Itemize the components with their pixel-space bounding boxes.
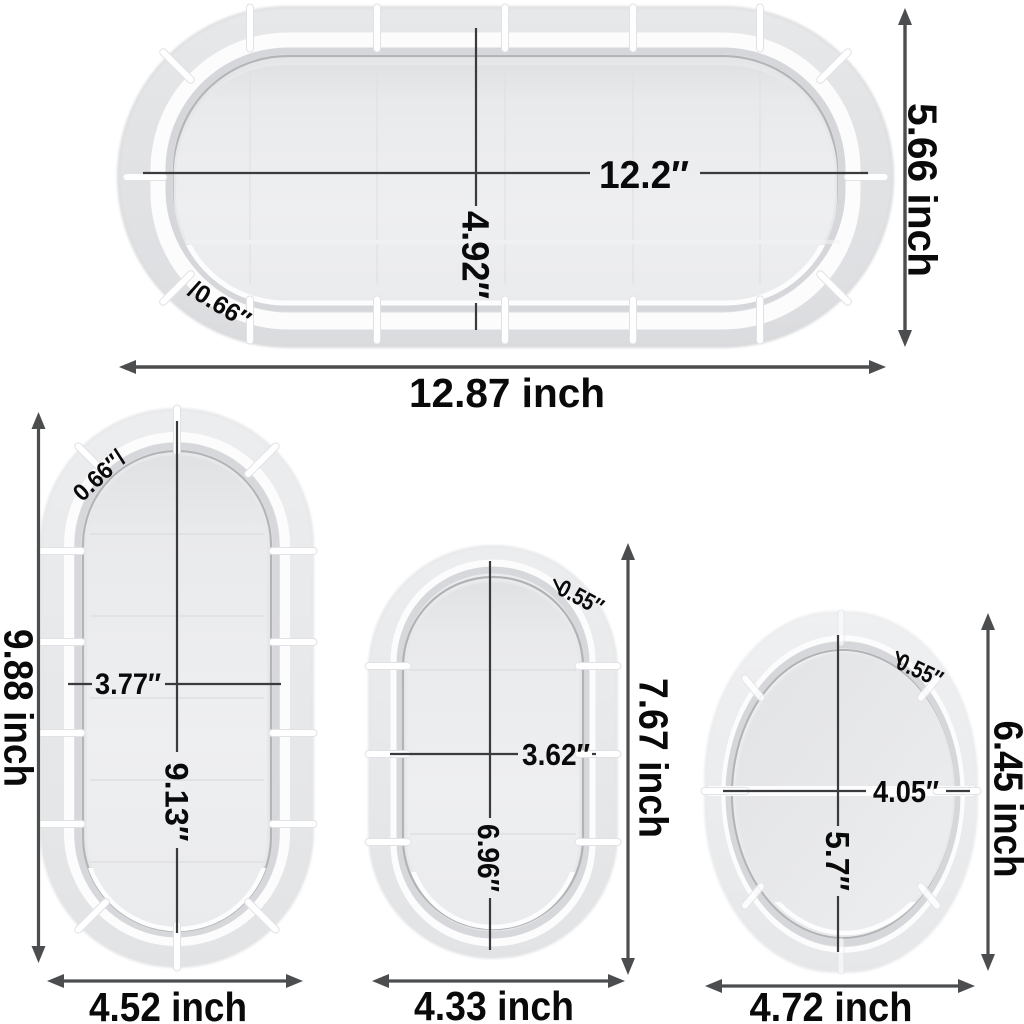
svg-text:4.52 inch: 4.52 inch (89, 984, 247, 1024)
svg-text:12.2″: 12.2″ (599, 154, 689, 197)
svg-text:4.05″: 4.05″ (873, 774, 939, 809)
svg-text:5.66 inch: 5.66 inch (899, 103, 945, 277)
svg-text:9.88 inch: 9.88 inch (0, 629, 41, 787)
svg-text:12.87 inch: 12.87 inch (409, 370, 605, 416)
svg-text:3.62″: 3.62″ (522, 737, 590, 772)
svg-text:3.77″: 3.77″ (95, 668, 161, 701)
svg-text:9.13″: 9.13″ (158, 763, 194, 842)
svg-text:7.67 inch: 7.67 inch (630, 678, 676, 838)
svg-text:5.7″: 5.7″ (819, 831, 856, 891)
svg-text:4.33 inch: 4.33 inch (414, 983, 574, 1024)
svg-text:6.45 inch: 6.45 inch (985, 721, 1024, 878)
svg-text:4.92″: 4.92″ (453, 211, 495, 299)
svg-text:4.72 inch: 4.72 inch (750, 984, 913, 1024)
svg-text:6.96″: 6.96″ (471, 824, 506, 892)
